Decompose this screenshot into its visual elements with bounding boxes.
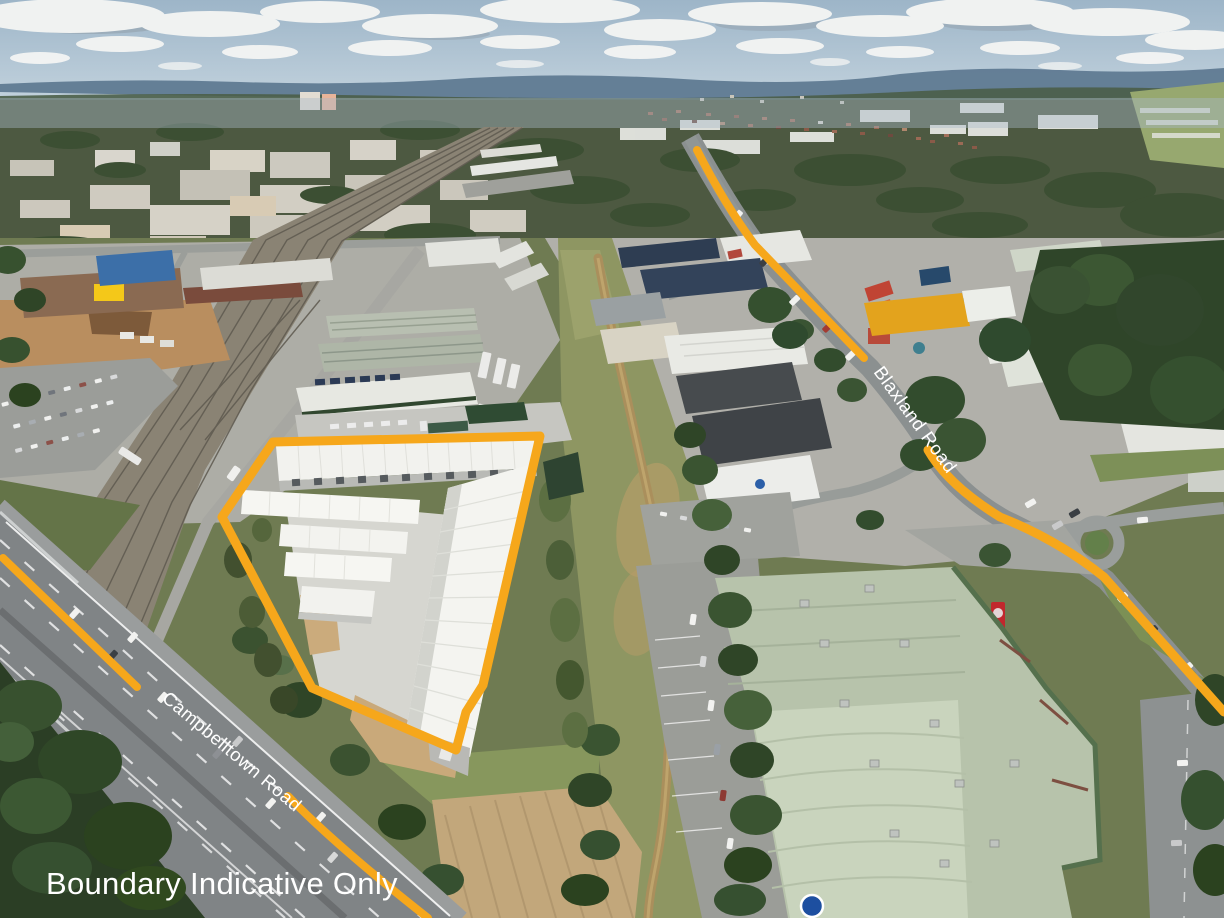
blue-roof-building [96, 250, 176, 286]
store-logo [801, 895, 823, 917]
horizon-haze [0, 98, 1224, 128]
aerial-photo-canvas: Campbelltown Road Blaxland Road Boundary… [0, 0, 1224, 918]
aerial-photo: Campbelltown Road Blaxland Road Boundary… [0, 0, 1224, 918]
storage-building-west-4 [299, 586, 375, 617]
distant-suburbs [0, 82, 1224, 260]
disclaimer-text: Boundary Indicative Only [46, 866, 398, 901]
